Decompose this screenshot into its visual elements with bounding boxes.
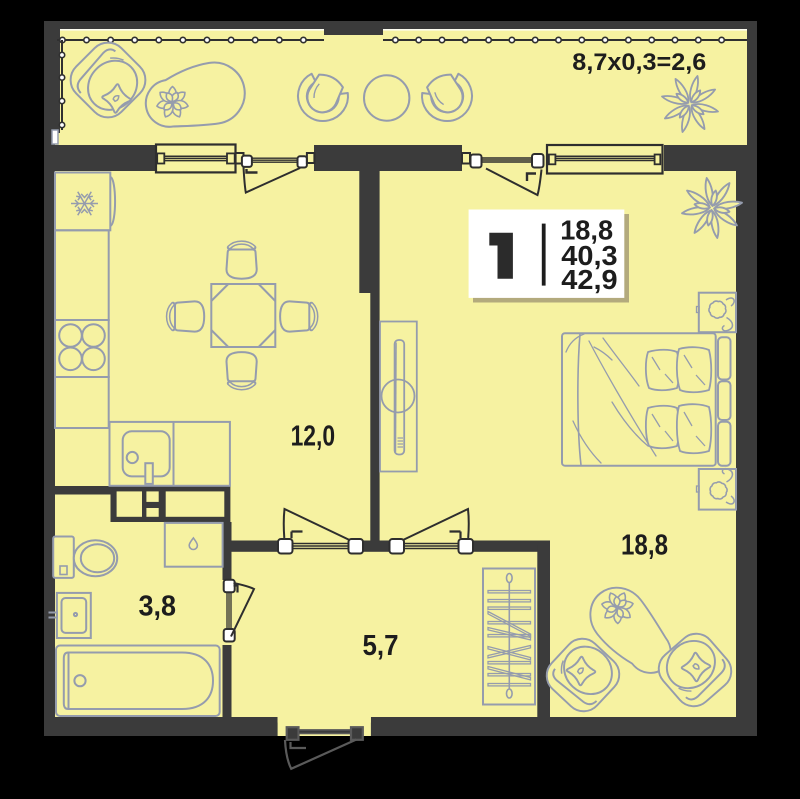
- svg-text:5,7: 5,7: [363, 630, 399, 662]
- svg-text:18,8: 18,8: [621, 530, 668, 562]
- svg-text:8,7x0,3=2,6: 8,7x0,3=2,6: [572, 49, 706, 76]
- svg-text:3,8: 3,8: [139, 591, 177, 623]
- svg-text:42,9: 42,9: [561, 264, 617, 295]
- svg-text:12,0: 12,0: [291, 421, 336, 453]
